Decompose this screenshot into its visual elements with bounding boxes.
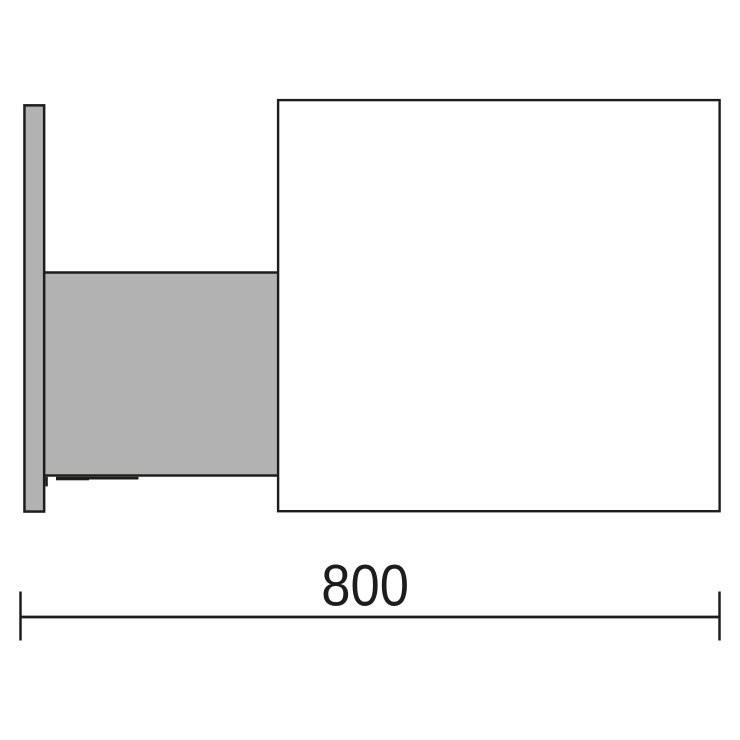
svg-text:800: 800 [321,554,409,619]
